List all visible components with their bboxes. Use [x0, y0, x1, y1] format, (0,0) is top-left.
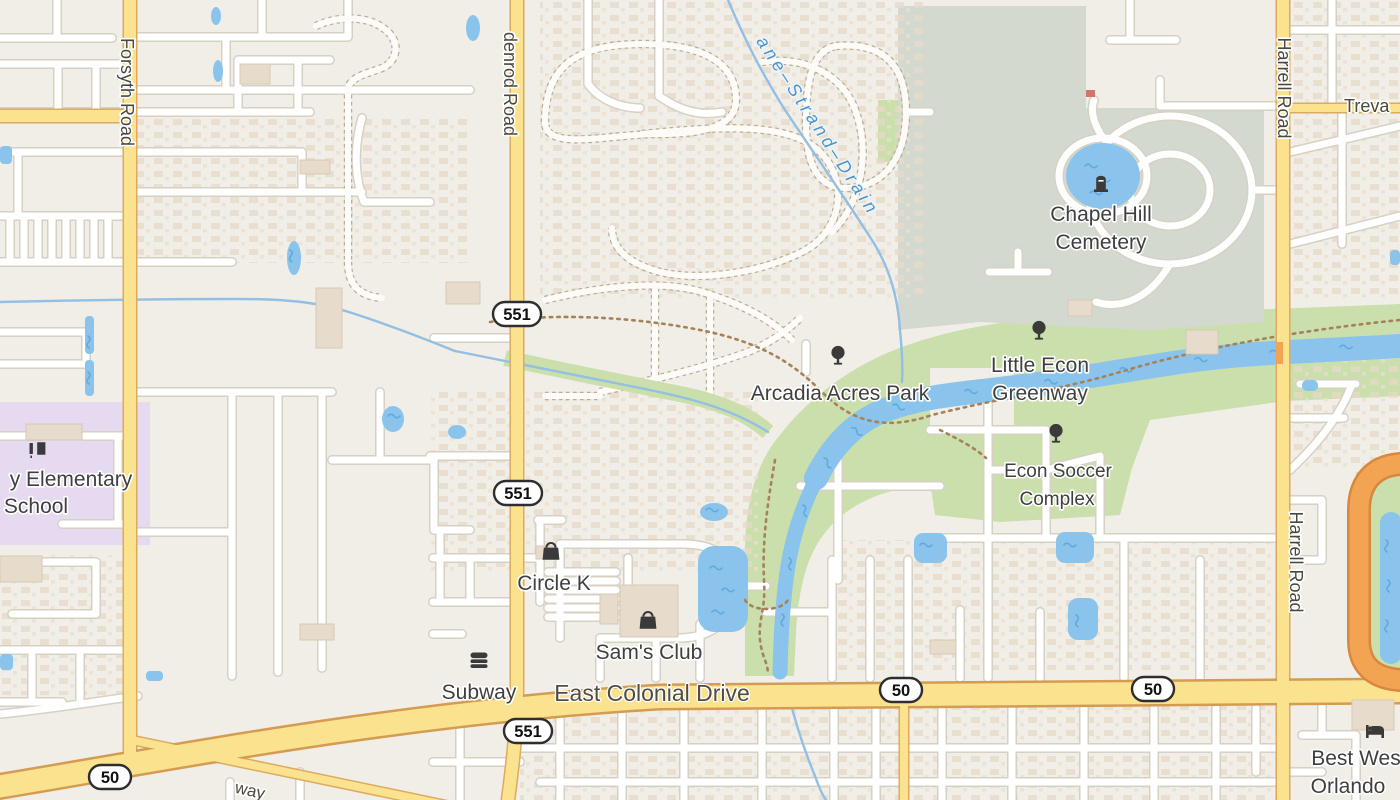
road-label-east-colonial: East Colonial Drive: [554, 680, 750, 706]
shield-551: 551: [493, 302, 541, 326]
shield-50: 50: [1132, 677, 1174, 701]
label-sams-club[interactable]: Sam's Club: [596, 641, 703, 664]
shield-551: 551: [494, 481, 542, 505]
road-label-trevarthon: Treva: [1344, 96, 1390, 116]
best-western-building: [1352, 700, 1394, 730]
label-circle-k[interactable]: Circle K: [517, 572, 591, 595]
label-school-1[interactable]: y Elementary: [10, 468, 133, 491]
svg-text:551: 551: [503, 306, 531, 324]
label-chapel-hill-1[interactable]: Chapel Hill: [1050, 203, 1152, 226]
shield-50: 50: [89, 765, 131, 789]
fast-food-icon[interactable]: [471, 653, 488, 669]
road-label-harrell-south: Harrell Road: [1286, 511, 1306, 612]
svg-text:50: 50: [101, 769, 119, 787]
label-little-econ-1[interactable]: Little Econ: [991, 354, 1089, 377]
shield-551: 551: [504, 719, 552, 743]
shield-50: 50: [880, 678, 922, 702]
svg-text:551: 551: [514, 723, 542, 741]
label-econ-soccer-1[interactable]: Econ Soccer: [1004, 461, 1112, 482]
svg-text:50: 50: [1144, 681, 1162, 699]
svg-text:50: 50: [892, 682, 910, 700]
label-best-western-2[interactable]: Orlando: [1311, 775, 1386, 798]
label-chapel-hill-2[interactable]: Cemetery: [1055, 231, 1147, 254]
sams-club-building: [620, 585, 678, 637]
label-school-2[interactable]: School: [4, 495, 68, 518]
road-label-goldenrod: denrod Road: [500, 32, 520, 136]
label-best-western-1[interactable]: Best Wes: [1311, 747, 1400, 770]
label-arcadia[interactable]: Arcadia Acres Park: [751, 382, 930, 405]
svg-text:551: 551: [504, 485, 532, 503]
map-canvas[interactable]: Forsyth Road denrod Road Harrell Road Ha…: [0, 0, 1400, 800]
bridge-marker: [1276, 342, 1283, 364]
road-label-harrell-north: Harrell Road: [1274, 37, 1294, 138]
road-label-forsyth: Forsyth Road: [117, 38, 137, 146]
label-econ-soccer-2[interactable]: Complex: [1020, 489, 1095, 510]
label-subway[interactable]: Subway: [442, 681, 517, 704]
map-viewport[interactable]: Forsyth Road denrod Road Harrell Road Ha…: [0, 0, 1400, 800]
label-little-econ-2[interactable]: Greenway: [992, 382, 1088, 405]
school-building: [26, 424, 82, 440]
